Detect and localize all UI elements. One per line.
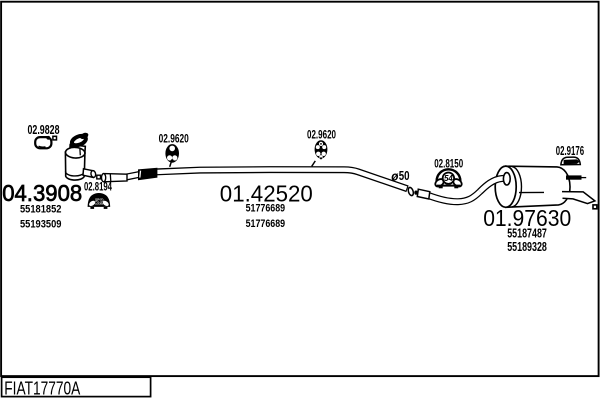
svg-text:54: 54 — [444, 174, 453, 183]
svg-text:55189328: 55189328 — [507, 239, 547, 254]
svg-text:02.9828: 02.9828 — [28, 123, 60, 137]
svg-text:04.3908: 04.3908 — [2, 180, 82, 206]
svg-text:ø: ø — [391, 170, 399, 184]
svg-text:02.8150: 02.8150 — [434, 157, 463, 171]
svg-text:02.9620: 02.9620 — [159, 132, 189, 146]
svg-text:02.9620: 02.9620 — [307, 128, 336, 142]
svg-text:51776689: 51776689 — [246, 203, 286, 215]
svg-text:02.8194: 02.8194 — [84, 180, 112, 194]
svg-text:51776689: 51776689 — [246, 218, 286, 230]
svg-text:FIAT17770A: FIAT17770A — [4, 378, 80, 398]
svg-text:02.9176: 02.9176 — [556, 144, 584, 158]
svg-text:52: 52 — [94, 197, 103, 206]
svg-text:55193509: 55193509 — [20, 219, 62, 231]
svg-text:55181852: 55181852 — [20, 204, 62, 216]
svg-text:50: 50 — [399, 169, 410, 183]
